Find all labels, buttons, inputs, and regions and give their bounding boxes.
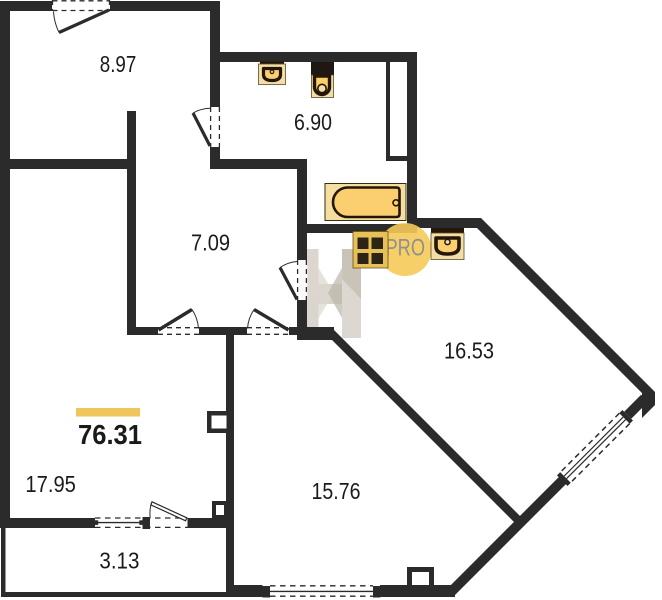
- svg-text:16.53: 16.53: [444, 338, 494, 364]
- svg-text:7.09: 7.09: [191, 230, 230, 256]
- svg-text:6.90: 6.90: [294, 109, 332, 135]
- svg-text:15.76: 15.76: [312, 478, 361, 504]
- svg-text:PRO: PRO: [386, 235, 426, 262]
- svg-text:76.31: 76.31: [78, 419, 142, 450]
- svg-text:3.13: 3.13: [99, 548, 139, 574]
- svg-text:17.95: 17.95: [25, 471, 76, 497]
- svg-text:8.97: 8.97: [100, 51, 137, 77]
